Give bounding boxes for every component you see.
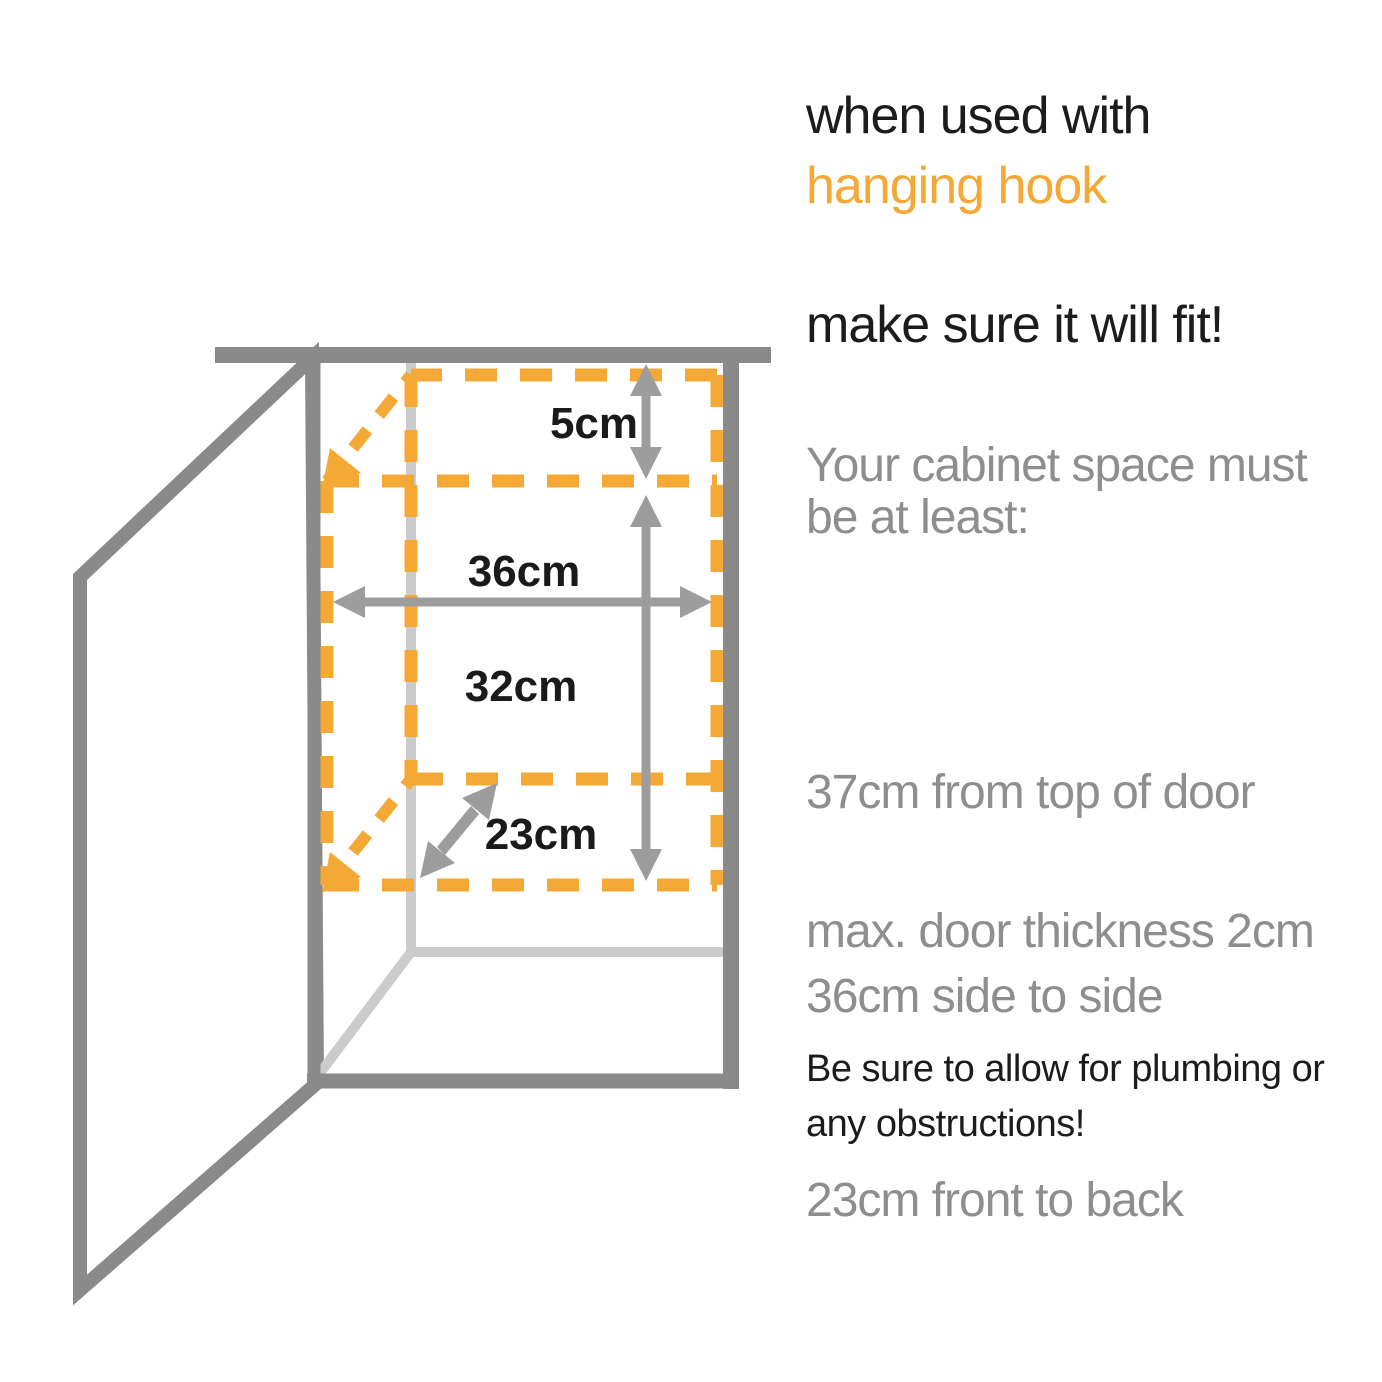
height-arrow-up-head — [630, 495, 662, 527]
requirements-intro: Your cabinet space must be at least: — [806, 440, 1351, 544]
cabinet-door — [80, 358, 317, 1290]
top-clearance-arrow-down-head — [630, 447, 662, 479]
width-arrow-shaft — [363, 598, 682, 607]
requirement-item-top-of-door: 37cm from top of door — [806, 759, 1255, 827]
door-thickness-note: max. door thickness 2cm — [806, 898, 1314, 966]
requirement-item-front-to-back: 23cm front to back — [806, 1167, 1255, 1235]
depth-arrow-shaft — [437, 806, 479, 855]
width-arrow-right-head — [680, 586, 712, 618]
clearance-box-depth-edges — [322, 375, 411, 893]
interior-floor-diagonal-line — [317, 952, 411, 1077]
requirement-item-side-to-side: 36cm side to side — [806, 963, 1255, 1031]
heading-line-2-hanging-hook: hanging hook — [806, 158, 1106, 215]
plumbing-warning: Be sure to allow for plumbing or any obs… — [806, 1042, 1382, 1152]
infographic: 5cm 36cm 32cm 23cm when used with hangin… — [0, 0, 1382, 1382]
requirements-list: 37cm from top of door 36cm side to side … — [806, 623, 1255, 1371]
width-arrow-left-head — [333, 586, 365, 618]
top-clearance-label: 5cm — [550, 399, 638, 448]
height-arrow-shaft — [642, 524, 651, 854]
cabinet-interior-lines — [317, 362, 731, 1077]
width-label: 36cm — [468, 547, 581, 596]
heading-line-3: make sure it will fit! — [806, 297, 1223, 354]
depth-label: 23cm — [485, 810, 598, 859]
height-label: 32cm — [465, 662, 578, 711]
heading-line-1: when used with — [806, 88, 1150, 145]
height-arrow-down-head — [630, 849, 662, 881]
top-clearance-arrow-shaft — [642, 392, 651, 450]
